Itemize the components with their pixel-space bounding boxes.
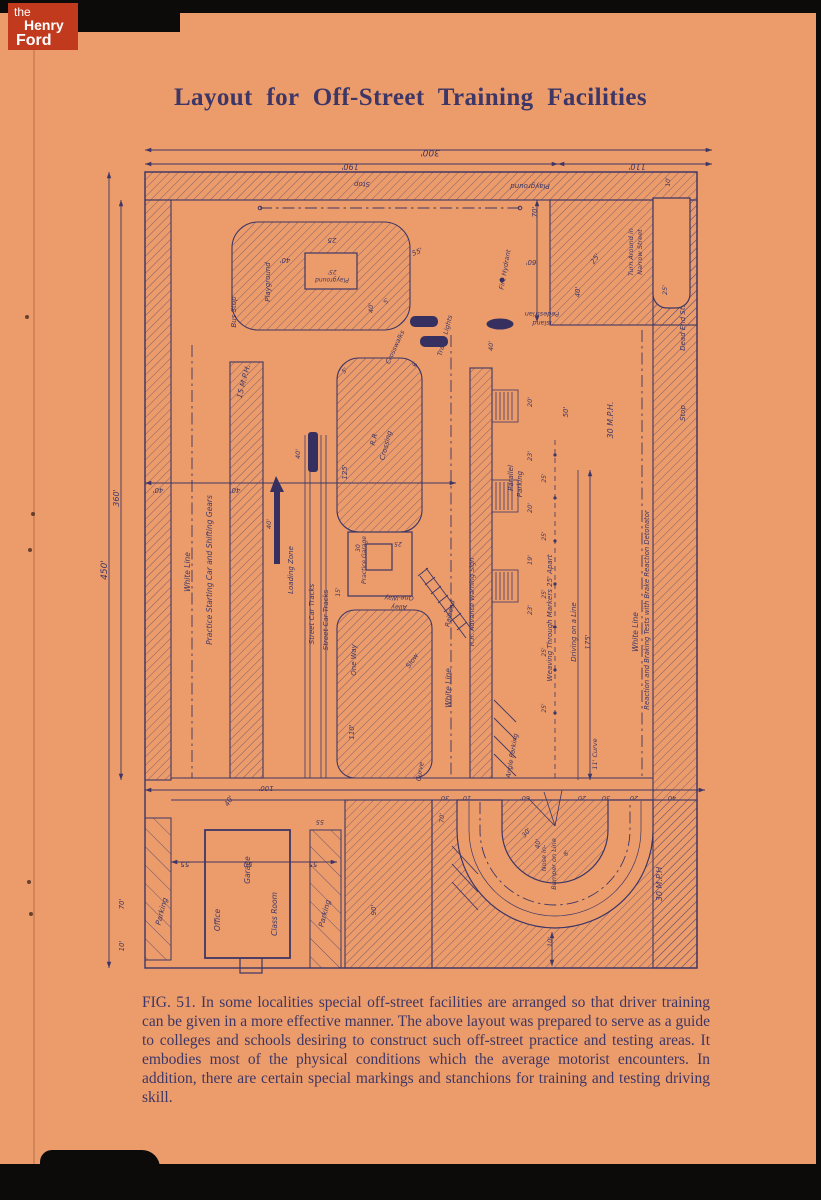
scan-border-bottom <box>0 1164 821 1200</box>
diagram-label: 20' <box>526 397 534 407</box>
diagram-label: Bumper on Line <box>550 838 558 889</box>
diagram-label: 25' <box>541 703 548 713</box>
diagram-label: 90' <box>370 905 378 916</box>
diagram-label: 70' <box>531 207 539 218</box>
cul-de-sac-notch <box>653 198 690 308</box>
diagram-label: 190' <box>341 162 358 171</box>
diagram-label: 20' <box>526 503 534 513</box>
scan-border-top <box>0 0 821 13</box>
diagram-label: 55' <box>411 246 424 257</box>
diagram-label: Playground <box>510 182 550 190</box>
diagram-label: 300' <box>420 147 440 157</box>
diagram-label: Bus Stop <box>230 296 238 328</box>
diagram-label: 450' <box>100 560 110 580</box>
diagram-label: 30 <box>602 794 610 802</box>
diagram-label: 70' <box>438 813 446 823</box>
diagram-label: White Line <box>183 552 192 592</box>
diagram-label: 40' <box>367 303 375 313</box>
diagram-label: One-Way <box>384 594 414 602</box>
diagram-label: R.R. Advance Warning Sign <box>468 558 476 647</box>
paper-fold-line <box>33 13 35 1164</box>
diagram-label: Driving on a Line <box>570 602 578 661</box>
diagram-label: 11' Curve <box>591 738 599 769</box>
paper-speck <box>29 912 33 916</box>
diagram-label: 40' <box>534 838 543 849</box>
diagram-label: 100' <box>258 784 273 792</box>
diagram-label: 19' <box>526 555 534 565</box>
diagram-label: 15' <box>335 587 342 597</box>
diagram-label: 25 <box>327 236 336 244</box>
diagram-label: Office <box>213 909 222 932</box>
diagram-label: 30 M.P.H <box>655 867 664 901</box>
diagram-label: 40' <box>265 519 273 529</box>
diagram-label: 25' <box>541 531 548 541</box>
diagram-label: 25' <box>541 589 548 599</box>
diagram-label: 40 <box>668 794 676 802</box>
diagram-label: Parallel <box>507 465 515 491</box>
diagram-label: Turn Around in <box>627 228 635 276</box>
diagram-label: 30 <box>441 794 449 802</box>
diagram-label: Narrow Street <box>636 229 644 275</box>
diagram-label: Island <box>531 319 551 327</box>
diagram-label: 40' <box>294 449 302 459</box>
diagram-label: 20 <box>578 794 586 802</box>
paper-speck <box>28 548 32 552</box>
diagram-label: 25' <box>661 285 669 295</box>
diagram-label: 50' <box>562 407 570 418</box>
diagram-label: Street Car Tracks <box>322 589 330 650</box>
page-title: Layout for Off-Street Training Facilitie… <box>0 84 821 112</box>
diagram-label: White Line <box>631 612 640 652</box>
diagram-label: 20 <box>630 794 638 802</box>
diagram-label: 40' <box>223 794 235 807</box>
diagram-label: 40' <box>280 256 291 264</box>
diagram-label: 40' <box>487 341 495 351</box>
diagram-label: Playground <box>315 276 349 283</box>
diagram-label: 50 <box>243 860 252 868</box>
diagram-label: 10' <box>546 937 554 947</box>
diagram-label: 30 M.P.H. <box>606 402 615 439</box>
diagram-label: Playground <box>264 262 272 302</box>
diagram-label: Practice Garage <box>361 536 368 584</box>
diagram-label: 25 <box>394 540 402 547</box>
pedestrian-island-mark <box>487 319 514 330</box>
logo-line-ford: Ford <box>16 33 78 49</box>
diagram-label: Dead End St. <box>679 305 687 351</box>
diagram-label: Reaction and Braking Tests with Brake Re… <box>643 509 651 710</box>
diagram-label: 23' <box>526 605 534 615</box>
diagram-label: 60' <box>520 794 530 802</box>
parallel-parking-bays <box>492 390 518 602</box>
diagram-label: Loading Zone <box>287 546 295 594</box>
diagram-label: 30 <box>355 544 362 552</box>
diagram-label: Parking <box>516 470 524 497</box>
diagram-label: Pedestrian <box>525 310 560 318</box>
diagram-label: 25' <box>327 268 337 275</box>
sparse-hatch-parking <box>145 818 341 968</box>
diagram-label: 55 <box>308 860 317 868</box>
diagram-label: Weaving Through Markers 25' Apart <box>546 554 554 681</box>
diagram-label: 40' <box>230 486 241 494</box>
diagram-label: One Way <box>350 643 358 675</box>
scanned-page: the Henry Ford Layout for Off-Street Tra… <box>0 0 821 1200</box>
paper-speck <box>31 512 35 516</box>
diagram-label: Class Room <box>270 892 279 936</box>
henry-ford-logo: the Henry Ford <box>8 3 78 50</box>
diagram-label: 70' <box>118 899 126 910</box>
diagram-label: Street Car Tracks <box>308 583 316 644</box>
diagram-label: 360' <box>112 489 121 506</box>
loading-zone-bar <box>308 432 318 472</box>
diagram-label: Stop <box>679 404 687 420</box>
diagram-label: 25' <box>541 473 548 483</box>
diagram-label: Practice Starting Car and Shifting Gears <box>205 495 214 645</box>
diagram-label: White Line <box>444 668 453 708</box>
diagram-label: Traffic Lights <box>436 314 455 357</box>
diagram-label: 10 <box>463 794 471 802</box>
diagram-label: 10' <box>665 177 672 187</box>
diagram-label: Alley <box>391 603 408 611</box>
diagram-label: 60' <box>526 258 537 266</box>
building-stub <box>240 958 262 973</box>
diagram-label: 55 <box>316 818 324 826</box>
diagram-label: 6' <box>412 361 419 367</box>
diagram-label: 110' <box>348 724 356 739</box>
diagram-label: 175' <box>584 634 592 649</box>
diagram-label: 110' <box>628 162 645 171</box>
diagram-label: 40' <box>574 287 582 298</box>
diagram-label: 55 <box>180 860 189 868</box>
diagram-label: Stop <box>353 180 369 188</box>
diagram-label: 40' <box>153 486 164 494</box>
figure-caption: FIG. 51. In some localities special off-… <box>142 994 710 1107</box>
diagram-label: 23' <box>526 451 534 461</box>
paper-speck <box>25 315 29 319</box>
paper-speck <box>27 880 31 884</box>
diagram-label: 25' <box>541 647 548 657</box>
crosswalk-bar <box>410 316 438 327</box>
diagram-label: 125' <box>341 464 349 479</box>
scan-border-right <box>816 0 821 1200</box>
diagram-label: 10' <box>118 941 126 952</box>
logo-line-henry: Henry <box>24 18 78 32</box>
diagram-label: Angle Parking <box>504 733 520 780</box>
site-plan-diagram: 300'190'110'450'360'StopPlaygroundPlaygr… <box>100 140 720 988</box>
diagram-label: Fire Hydrant <box>498 249 513 291</box>
